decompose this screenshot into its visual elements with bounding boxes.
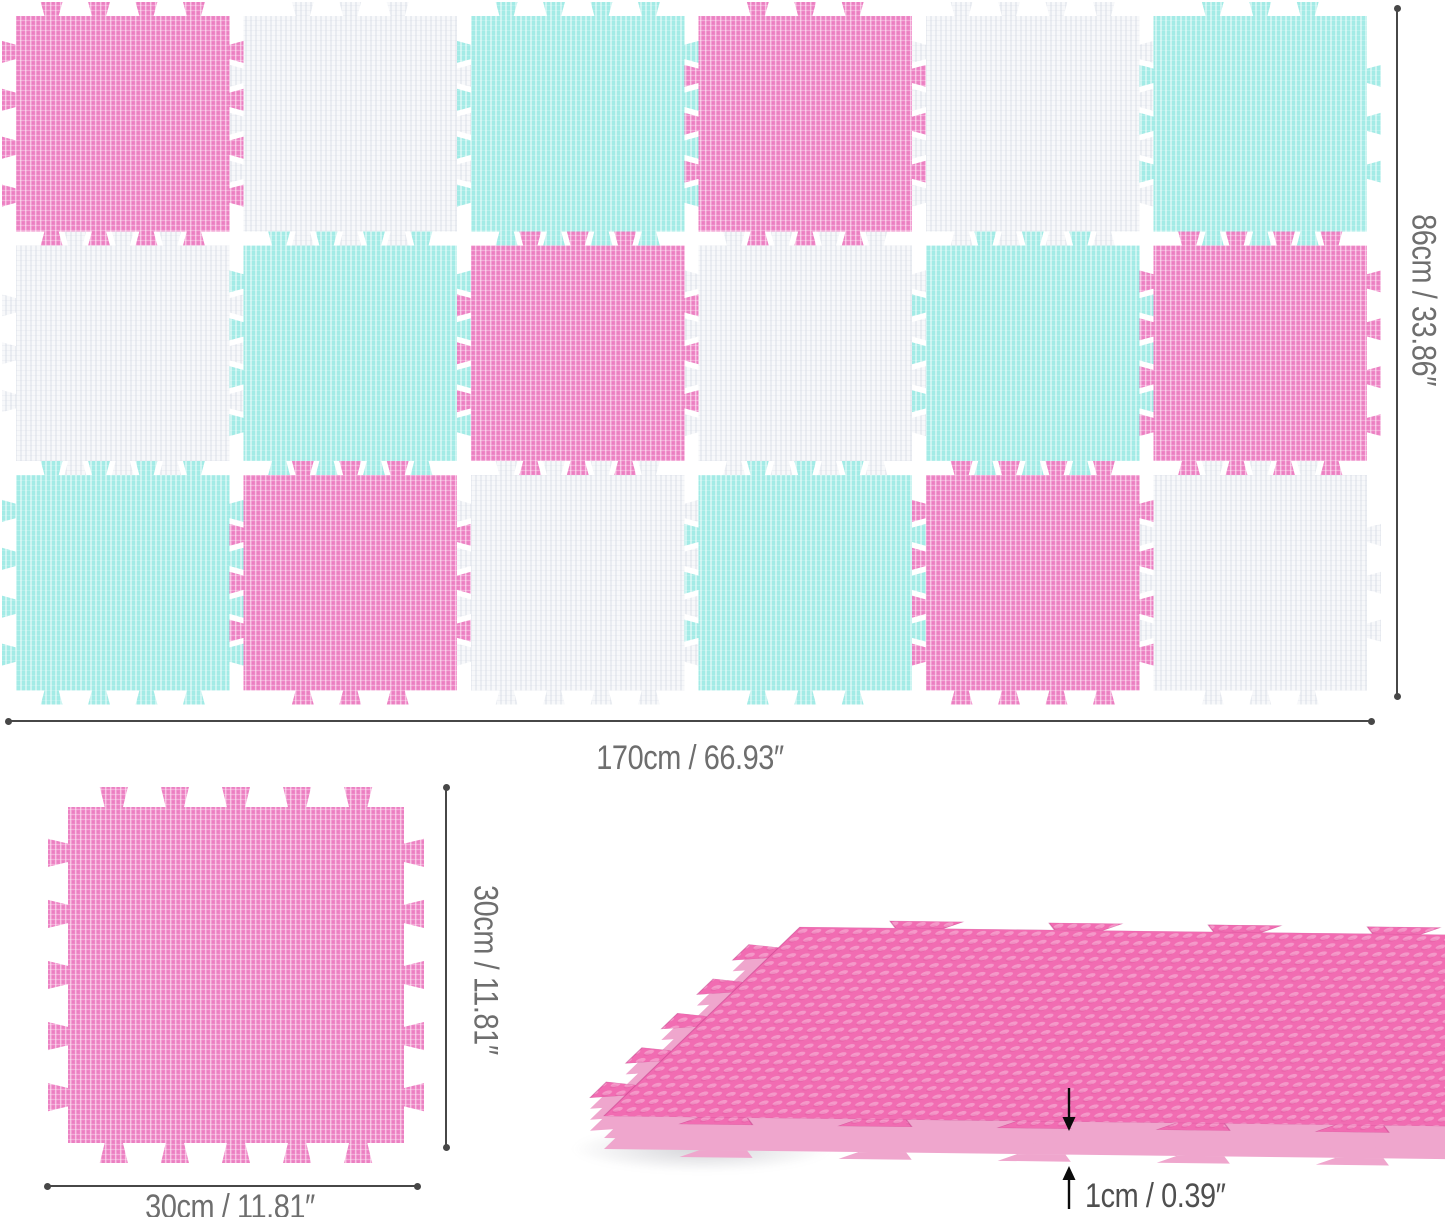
tile-height-dimension-line [445, 787, 447, 1148]
puzzle-tile [564, 920, 1445, 1134]
puzzle-tile [2, 2, 244, 246]
puzzle-tile [457, 232, 699, 476]
mat-height-label: 86cm / 33.86″ [1404, 156, 1441, 445]
puzzle-tile [912, 232, 1154, 476]
puzzle-tile [230, 461, 472, 705]
product-dimension-diagram: 170cm / 66.93″ 86cm / 33.86″ 30cm / 11.8… [0, 0, 1445, 1217]
tile-width-dimension-line [47, 1185, 418, 1187]
puzzle-tile [685, 232, 927, 476]
puzzle-tile [230, 232, 472, 476]
mat-width-label: 170cm / 66.93″ [546, 740, 835, 777]
puzzle-tile [230, 2, 472, 246]
puzzle-tile [48, 787, 424, 1163]
puzzle-tile [912, 2, 1154, 246]
arrow-up-icon [1063, 1166, 1076, 1209]
puzzle-tile [1140, 232, 1382, 476]
assembled-mat-illustration [0, 0, 1390, 712]
puzzle-tile [685, 2, 927, 246]
single-tile-illustration [40, 779, 432, 1171]
puzzle-tile [2, 461, 244, 705]
mat-width-dimension-line [8, 720, 1372, 722]
puzzle-tile [685, 461, 927, 705]
tile-side-view-illustration [560, 880, 1445, 1217]
puzzle-tile [1140, 461, 1382, 705]
puzzle-tile [2, 232, 244, 476]
puzzle-tile [457, 461, 699, 705]
mat-height-dimension-line [1396, 8, 1398, 697]
puzzle-tile [457, 2, 699, 246]
tile-width-label: 30cm / 11.81″ [86, 1189, 375, 1217]
tile-thickness-label: 1cm / 0.39″ [1085, 1178, 1225, 1215]
arrow-down-icon [1063, 1088, 1076, 1131]
puzzle-tile [912, 461, 1154, 705]
puzzle-tile [1140, 2, 1382, 246]
tile-height-label: 30cm / 11.81″ [466, 826, 503, 1115]
